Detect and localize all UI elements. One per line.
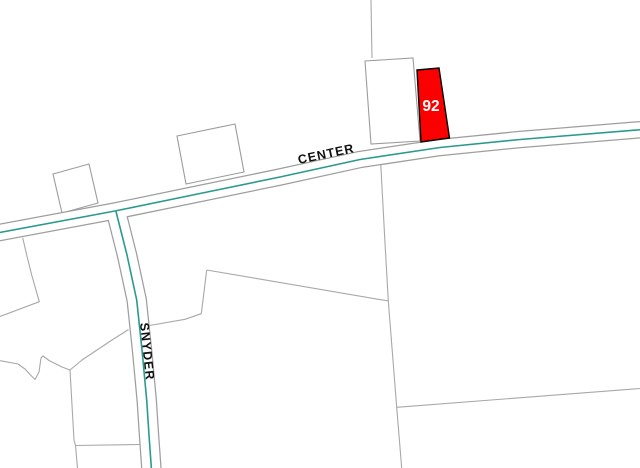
parcel-boundary-line (397, 389, 640, 408)
parcel-boundary-line (207, 270, 389, 301)
parcel-boundary-line (371, 0, 372, 58)
building-footprint (177, 124, 244, 184)
parcel-boundary-line (150, 270, 207, 326)
parcel-boundary-line (0, 238, 39, 317)
building-footprint (53, 164, 98, 213)
parcel-number-label: 92 (422, 98, 439, 115)
parcel-boundary-line (76, 445, 140, 446)
parcel-boundary-line (70, 370, 78, 468)
road-fill-center (0, 130, 640, 234)
building-footprint (365, 58, 420, 144)
map-viewport[interactable]: CENTERSNYDER92 (0, 0, 640, 468)
parcel-boundary-line (381, 163, 402, 468)
parcel-boundary-line (0, 330, 129, 380)
map-canvas[interactable]: CENTERSNYDER92 (0, 0, 640, 468)
